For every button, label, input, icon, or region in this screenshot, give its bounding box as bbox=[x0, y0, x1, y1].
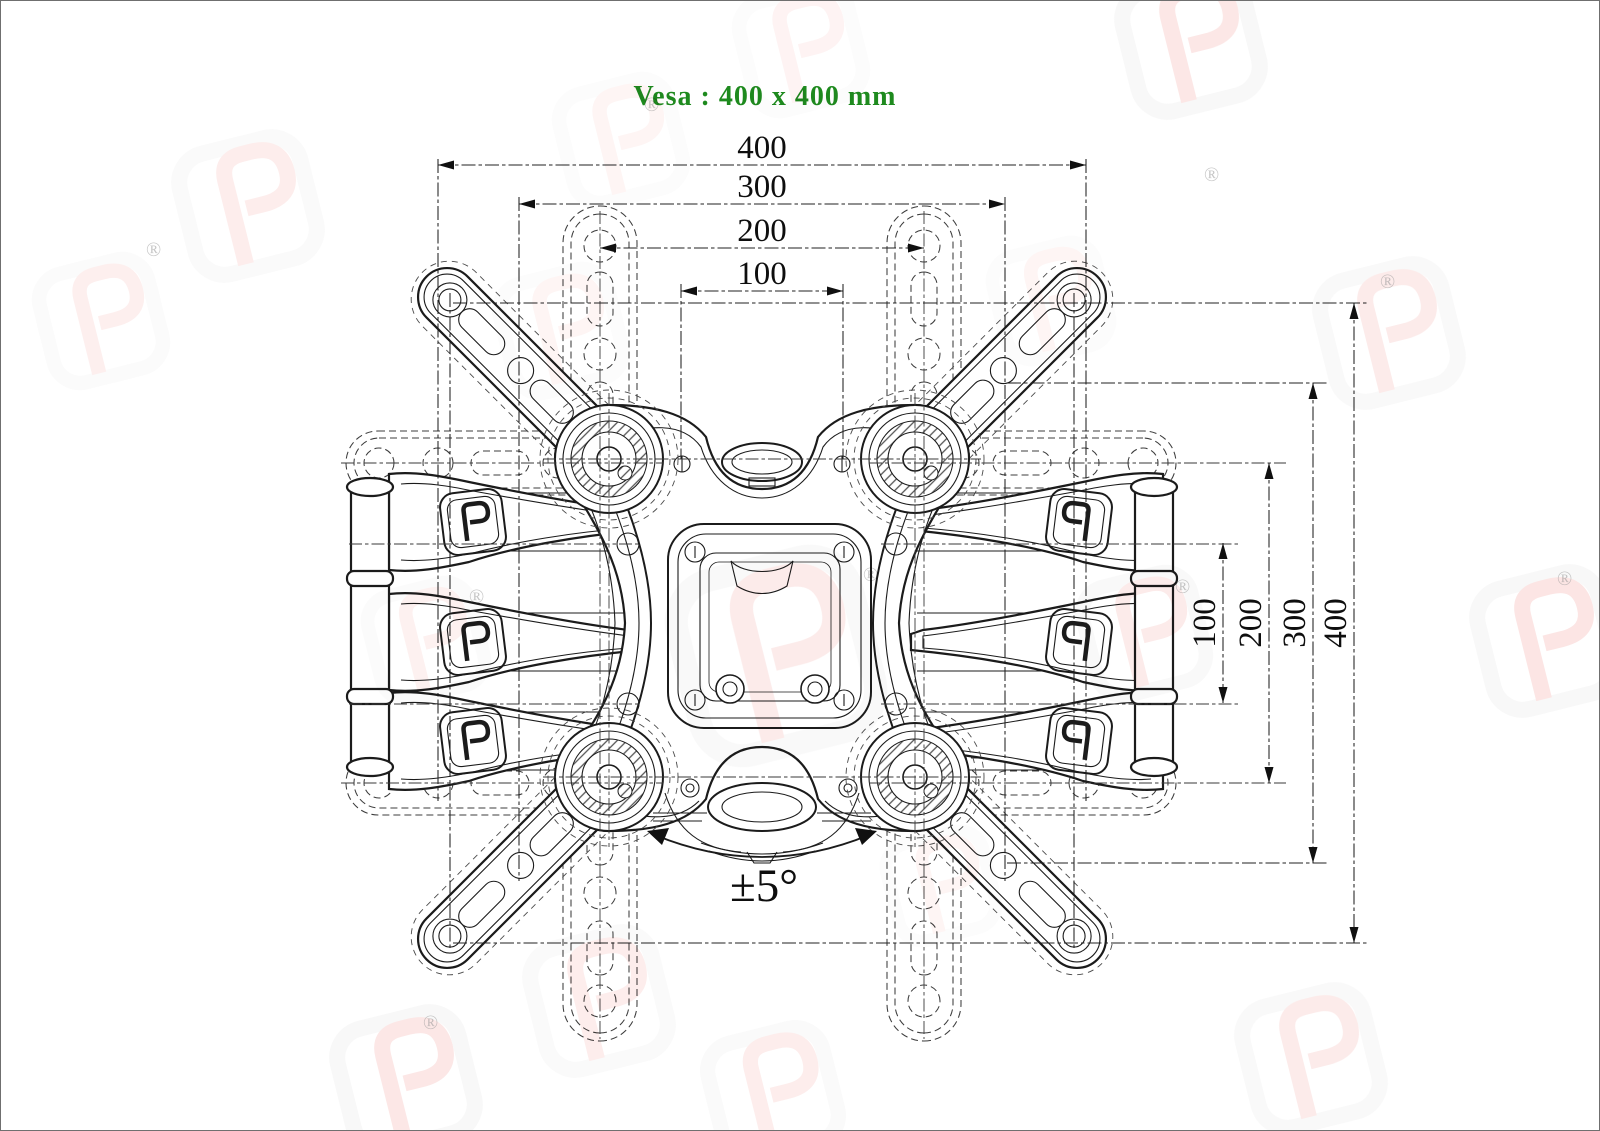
brand-watermark bbox=[173, 131, 323, 281]
registered-mark: ® bbox=[1557, 568, 1572, 590]
registered-mark: ® bbox=[644, 94, 659, 116]
tilt-angle-label: ±5° bbox=[730, 860, 798, 912]
dim-horizontal-400: 400 bbox=[438, 130, 1086, 170]
dim-vertical-300: 300 bbox=[1277, 383, 1318, 863]
registered-mark: ® bbox=[146, 239, 161, 261]
watermark-layer: ® ® ® ® ® ® ® ® ® bbox=[33, 1, 1600, 1131]
brand-watermark bbox=[733, 1, 868, 117]
dim-label-h400: 400 bbox=[737, 130, 787, 166]
dim-horizontal-100: 100 bbox=[681, 256, 843, 296]
tilt-annotation: ±5° bbox=[647, 828, 877, 912]
registered-mark: ® bbox=[1204, 164, 1219, 186]
brand-watermark bbox=[33, 253, 168, 388]
dim-vertical-200: 200 bbox=[1233, 463, 1274, 783]
brand-watermark bbox=[331, 1006, 481, 1131]
brand-watermark bbox=[1236, 984, 1386, 1131]
brand-watermark bbox=[553, 73, 688, 208]
dim-label-v300: 300 bbox=[1277, 598, 1313, 648]
dim-label-h200: 200 bbox=[737, 213, 787, 249]
wall-mount-diagram: 400 300 200 100 100 200 300 bbox=[1, 1, 1600, 1131]
registered-mark: ® bbox=[1175, 576, 1190, 598]
registered-mark: ® bbox=[469, 586, 484, 608]
dim-label-h300: 300 bbox=[737, 169, 787, 205]
brand-watermark bbox=[524, 926, 674, 1076]
registered-mark: ® bbox=[863, 564, 878, 586]
dim-label-v200: 200 bbox=[1233, 598, 1269, 648]
dim-label-v400: 400 bbox=[1318, 598, 1354, 648]
technical-drawing-page: 400 300 200 100 100 200 300 bbox=[0, 0, 1600, 1131]
brand-watermark bbox=[702, 1022, 845, 1131]
registered-mark: ® bbox=[1380, 271, 1395, 293]
dim-horizontal-200: 200 bbox=[600, 213, 924, 253]
registered-mark: ® bbox=[423, 1012, 438, 1034]
dim-label-h100: 100 bbox=[737, 256, 787, 292]
brand-watermark bbox=[1116, 1, 1266, 118]
brand-watermark bbox=[1471, 566, 1600, 716]
